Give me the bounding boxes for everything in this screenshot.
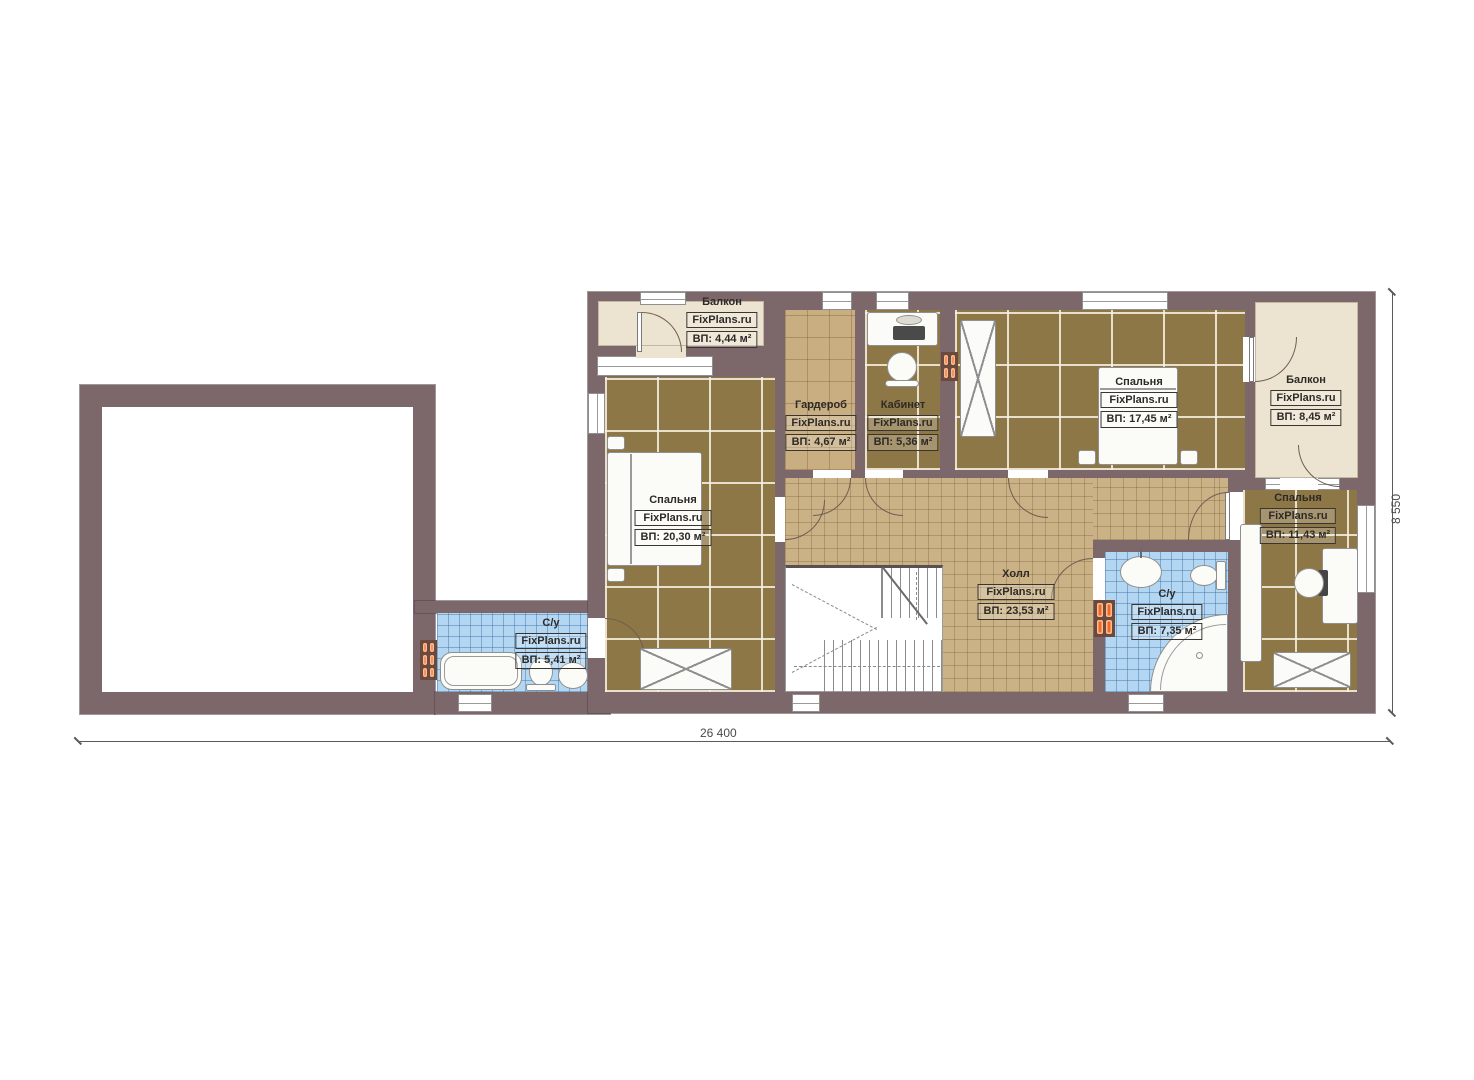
room-area: ВП: 11,43 м² xyxy=(1260,527,1336,544)
door-gap-bedroom-left xyxy=(775,497,785,542)
door-gap-bathroom-left xyxy=(588,618,605,658)
room-name: Гардероб xyxy=(785,399,856,412)
room-name: Балкон xyxy=(686,296,757,309)
room-watermark: FixPlans.ru xyxy=(785,415,856,432)
dimension-line-bottom xyxy=(78,741,1390,742)
wardrobe-left-bedroom xyxy=(640,648,732,690)
dimension-label-bottom: 26 400 xyxy=(700,726,737,740)
room-watermark: FixPlans.ru xyxy=(1260,508,1336,525)
sink-right-bathroom xyxy=(1120,556,1162,588)
room-watermark: FixPlans.ru xyxy=(1131,604,1202,621)
window-bottom-stairs xyxy=(792,694,820,712)
chair-right-bedroom xyxy=(1294,568,1324,598)
room-watermark: FixPlans.ru xyxy=(635,510,712,527)
office-printer-top xyxy=(896,315,922,325)
door-gap-bathroom-right xyxy=(1093,558,1105,600)
dimension-label-right: 8 550 xyxy=(1389,494,1403,524)
door-gap-office xyxy=(865,470,903,478)
office-chair-back xyxy=(885,380,919,387)
wardrobe-right-bedroom xyxy=(1273,652,1351,688)
staircase xyxy=(785,565,943,692)
window-top-2 xyxy=(876,292,909,310)
bed-left-pillow-line xyxy=(630,454,632,564)
room-watermark: FixPlans.ru xyxy=(515,633,586,650)
garage-interior xyxy=(102,407,413,692)
wardrobe-main-bedroom xyxy=(960,320,996,437)
window-top-3 xyxy=(1082,292,1168,310)
room-watermark: FixPlans.ru xyxy=(686,312,757,329)
stairs-path-diag1 xyxy=(792,584,877,630)
room-label-hall: Холл FixPlans.ru ВП: 23,53 м² xyxy=(978,568,1055,620)
nightstand-left-2 xyxy=(607,568,625,582)
wing-top-wall xyxy=(415,601,611,613)
room-watermark: FixPlans.ru xyxy=(1101,392,1178,409)
room-area: ВП: 4,67 м² xyxy=(785,434,856,451)
room-watermark: FixPlans.ru xyxy=(978,584,1055,601)
room-label-bathroom-left: С/у FixPlans.ru ВП: 5,41 м² xyxy=(515,617,586,669)
door-gap-wardrobe xyxy=(813,470,851,478)
toilet-bowl-right xyxy=(1190,565,1218,586)
room-watermark: FixPlans.ru xyxy=(1270,390,1341,407)
room-label-bathroom-right: С/у FixPlans.ru ВП: 7,35 м² xyxy=(1131,588,1202,640)
office-printer xyxy=(893,326,925,340)
door-gap-balcony-right-lower xyxy=(1280,478,1318,490)
bench-main-2 xyxy=(1180,450,1198,465)
door-gap-bedroom-main xyxy=(1008,470,1048,478)
room-name: Кабинет xyxy=(867,399,938,412)
office-chair xyxy=(887,352,917,382)
room-label-bedroom-right: Спальня FixPlans.ru ВП: 11,43 м² xyxy=(1260,492,1336,544)
nightstand-left-1 xyxy=(607,436,625,450)
room-name: Спальня xyxy=(1260,492,1336,505)
room-area: ВП: 8,45 м² xyxy=(1270,409,1341,426)
bathtub-left-inner xyxy=(444,656,518,686)
room-area: ВП: 20,30 м² xyxy=(635,529,712,546)
window-top-balcony xyxy=(640,292,686,305)
room-name: Спальня xyxy=(1101,376,1178,389)
room-area: ВП: 5,36 м² xyxy=(867,434,938,451)
radiator-office xyxy=(941,352,958,381)
room-label-office: Кабинет FixPlans.ru ВП: 5,36 м² xyxy=(867,399,938,451)
room-area: ВП: 4,44 м² xyxy=(686,331,757,348)
room-label-wardrobe: Гардероб FixPlans.ru ВП: 4,67 м² xyxy=(785,399,856,451)
room-label-balcony-right: Балкон FixPlans.ru ВП: 8,45 м² xyxy=(1270,374,1341,426)
cabinet-right-bedroom xyxy=(1240,524,1262,662)
room-name: Холл xyxy=(978,568,1055,581)
room-label-balcony-tl: Балкон FixPlans.ru ВП: 4,44 м² xyxy=(686,296,757,348)
window-top-1 xyxy=(822,292,852,310)
radiator-bathroom-right xyxy=(1094,600,1115,637)
window-bottom-bath-right xyxy=(1128,694,1164,712)
window-below-balcony-tl xyxy=(597,356,713,376)
bathtub-drain xyxy=(1196,652,1203,659)
toilet-tank-left xyxy=(526,684,556,691)
radiator-bathroom-left xyxy=(420,640,437,680)
stairs-path-low xyxy=(794,666,940,667)
window-left-bedroom xyxy=(588,393,605,434)
window-right-bedroom xyxy=(1357,505,1375,593)
door-leaf-balcony-right-upper xyxy=(1249,337,1254,382)
room-area: ВП: 7,35 м² xyxy=(1131,623,1202,640)
room-label-bedroom-main: Спальня FixPlans.ru ВП: 17,45 м² xyxy=(1101,376,1178,428)
room-area: ВП: 23,53 м² xyxy=(978,603,1055,620)
room-name: С/у xyxy=(1131,588,1202,601)
stairs-path-up xyxy=(916,572,917,620)
toilet-tank-right xyxy=(1216,561,1226,590)
window-bottom-bath-left xyxy=(458,694,492,712)
room-name: С/у xyxy=(515,617,586,630)
floor-plan-canvas: Балкон FixPlans.ru ВП: 4,44 м² Гардероб … xyxy=(0,0,1474,1080)
sink-tap-right xyxy=(1140,548,1142,558)
room-area: ВП: 5,41 м² xyxy=(515,652,586,669)
room-watermark: FixPlans.ru xyxy=(867,415,938,432)
room-name: Балкон xyxy=(1270,374,1341,387)
bench-main-1 xyxy=(1078,450,1096,465)
room-label-bedroom-left: Спальня FixPlans.ru ВП: 20,30 м² xyxy=(635,494,712,546)
room-name: Спальня xyxy=(635,494,712,507)
room-area: ВП: 17,45 м² xyxy=(1101,411,1178,428)
